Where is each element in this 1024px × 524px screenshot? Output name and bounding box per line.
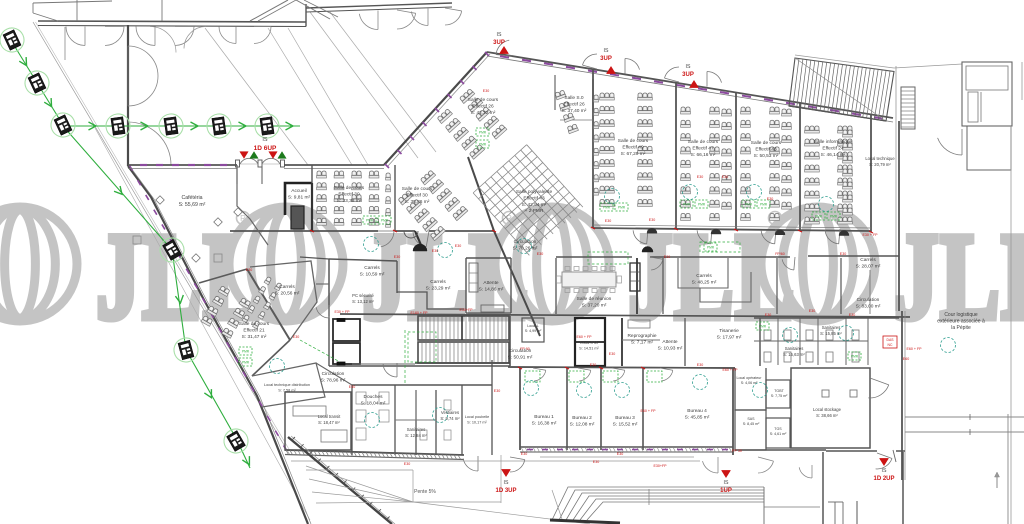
svg-text:E30: E30 [649, 218, 655, 222]
svg-text:E30: E30 [293, 335, 299, 339]
svg-text:E30: E30 [697, 175, 703, 179]
svg-text:Bureau 2: Bureau 2 [572, 415, 592, 421]
svg-text:S: 38,66 m²: S: 38,66 m² [816, 413, 838, 418]
svg-text:S: 42,94 m²: S: 42,94 m² [522, 202, 547, 208]
svg-text:S: 15,85 m²: S: 15,85 m² [820, 331, 842, 336]
svg-text:Salle S.0: Salle S.0 [564, 95, 584, 101]
svg-text:Cour logistique: Cour logistique [944, 312, 978, 318]
svg-text:IS: IS [882, 468, 887, 474]
svg-text:S: 37,20 m²: S: 37,20 m² [582, 302, 607, 308]
svg-text:Reprographie: Reprographie [627, 333, 656, 339]
svg-text:E30: E30 [432, 249, 438, 253]
svg-text:SAS: SAS [747, 417, 755, 421]
svg-text:E30: E30 [809, 309, 815, 313]
svg-text:S: 20,79 m²: S: 20,79 m² [869, 162, 891, 167]
svg-text:E60 + FP: E60 + FP [722, 368, 738, 372]
svg-text:S: 7,58 m²: S: 7,58 m² [278, 388, 296, 392]
svg-text:E30: E30 [404, 462, 410, 466]
svg-text:3UP: 3UP [600, 56, 612, 62]
svg-text:PMR: PMR [760, 203, 768, 207]
svg-text:Local L: Local L [527, 324, 539, 328]
svg-text:Salle de cours: Salle de cours [618, 138, 649, 144]
svg-text:E30 + FP: E30 + FP [862, 233, 878, 237]
svg-text:E30: E30 [349, 385, 355, 389]
svg-text:S: 70,26 m²: S: 70,26 m² [513, 245, 538, 251]
svg-text:E30: E30 [521, 452, 527, 456]
svg-text:Attente: Attente [662, 339, 678, 345]
svg-text:IS: IS [262, 137, 268, 143]
svg-text:S: 37,40 m²: S: 37,40 m² [562, 108, 587, 114]
svg-text:Salle polyvalente: Salle polyvalente [516, 189, 553, 195]
svg-text:S: 13,12 m²: S: 13,12 m² [352, 299, 374, 304]
svg-text:Local technique: Local technique [865, 156, 895, 161]
svg-text:E30: E30 [849, 313, 855, 317]
svg-text:1UP: 1UP [720, 488, 732, 494]
svg-text:S: 8,45 m²: S: 8,45 m² [743, 422, 760, 426]
svg-text:E30: E30 [494, 389, 500, 393]
svg-text:PMR: PMR [698, 203, 706, 207]
svg-text:Salle de cours: Salle de cours [468, 97, 499, 103]
svg-text:Bureau 1: Bureau 1 [534, 414, 554, 420]
svg-text:PMR: PMR [603, 206, 611, 210]
svg-text:Salle de cours: Salle de cours [688, 139, 719, 145]
svg-text:PMR: PMR [759, 325, 767, 329]
svg-text:TGBT: TGBT [774, 389, 784, 393]
svg-text:3UP: 3UP [493, 40, 505, 46]
svg-text:S: 9,81 m²: S: 9,81 m² [288, 194, 311, 200]
svg-text:S: 10,17 m²: S: 10,17 m² [467, 420, 487, 424]
svg-text:E30: E30 [246, 268, 252, 272]
svg-text:Local CTA: Local CTA [580, 341, 598, 345]
svg-text:Effectif 43: Effectif 43 [523, 195, 545, 201]
svg-text:E30: E30 [765, 313, 771, 317]
svg-text:Local opérateur: Local opérateur [737, 376, 763, 380]
svg-text:S: 17,97 m²: S: 17,97 m² [717, 334, 742, 340]
svg-text:E30: E30 [840, 252, 846, 256]
svg-text:Bureau 4: Bureau 4 [687, 408, 707, 414]
svg-text:E30 + FP: E30 + FP [334, 310, 350, 314]
svg-text:E30: E30 [767, 197, 773, 201]
svg-text:Circulation: Circulation [509, 348, 532, 354]
svg-text:Circulation: Circulation [857, 297, 880, 303]
svg-text:S: 14,86 m²: S: 14,86 m² [479, 286, 504, 292]
svg-text:E30+FP: E30+FP [653, 464, 667, 468]
svg-text:3UP: 3UP [682, 72, 694, 78]
svg-text:S: 16,38 m²: S: 16,38 m² [532, 420, 557, 426]
svg-text:DAS: DAS [887, 338, 895, 342]
svg-text:Local technique distribution: Local technique distribution [264, 383, 310, 387]
svg-text:S: 10,93 m²: S: 10,93 m² [658, 345, 683, 351]
svg-text:PMR: PMR [745, 203, 753, 207]
svg-text:E60: E60 [903, 357, 909, 361]
svg-text:Carrels: Carrels [860, 257, 876, 263]
svg-text:S: 50,91 m²: S: 50,91 m² [508, 354, 533, 360]
svg-text:S: 4,99 m²: S: 4,99 m² [525, 329, 542, 333]
svg-text:Attente: Attente [483, 280, 499, 286]
svg-text:E30: E30 [593, 460, 599, 464]
svg-text:S: 31,47 m²: S: 31,47 m² [242, 334, 267, 340]
svg-text:PMR: PMR [381, 219, 389, 223]
svg-text:S: 45,85 m²: S: 45,85 m² [685, 414, 710, 420]
svg-text:Local stockage: Local stockage [813, 407, 842, 412]
svg-text:Carrels: Carrels [364, 265, 380, 271]
svg-text:PMR: PMR [707, 246, 715, 250]
svg-text:Sanitaires: Sanitaires [407, 427, 426, 432]
svg-text:PMR: PMR [242, 361, 250, 365]
svg-text:Circulation: Circulation [514, 239, 537, 245]
svg-text:S: 78,96 m²: S: 78,96 m² [321, 377, 346, 383]
svg-text:S: 83,00 m²: S: 83,00 m² [856, 303, 881, 309]
svg-text:Salle de cours: Salle de cours [402, 186, 433, 192]
svg-text:Douches: Douches [364, 394, 384, 400]
svg-text:E30: E30 [664, 255, 670, 259]
svg-text:S: 23,29 m²: S: 23,29 m² [426, 285, 451, 291]
svg-text:IS: IS [497, 32, 502, 38]
svg-text:S: 48,25 m²: S: 48,25 m² [692, 279, 717, 285]
svg-text:extérieure associée à: extérieure associée à [937, 319, 985, 325]
svg-text:S: 7,17 m²: S: 7,17 m² [631, 339, 654, 345]
svg-text:S: 14,51 m²: S: 14,51 m² [579, 346, 599, 350]
svg-text:PMR: PMR [479, 143, 487, 147]
svg-text:S: 38,86 m²: S: 38,86 m² [405, 199, 430, 205]
svg-text:E30: E30 [537, 252, 543, 256]
svg-text:Salle de cours: Salle de cours [239, 321, 270, 327]
svg-text:Carrels: Carrels [279, 284, 295, 290]
svg-text:PMR: PMR [618, 206, 626, 210]
svg-text:NC: NC [888, 343, 893, 347]
svg-text:Salle de cours: Salle de cours [751, 140, 782, 146]
svg-text:1D 3UP: 1D 3UP [495, 488, 516, 494]
svg-text:S: 55,69 m²: S: 55,69 m² [179, 202, 206, 208]
svg-text:S: 15,63 m²: S: 15,63 m² [783, 352, 805, 357]
svg-text:Effectif 24: Effectif 24 [822, 145, 844, 151]
svg-text:S: 50,53 m²: S: 50,53 m² [754, 153, 779, 159]
svg-text:PMR: PMR [683, 203, 691, 207]
svg-text:Salle informatique: Salle informatique [814, 139, 853, 145]
svg-text:S: 12,08 m²: S: 12,08 m² [570, 421, 595, 427]
svg-text:S: 4,06 m²: S: 4,06 m² [741, 381, 758, 385]
svg-text:S: 33,38 m²: S: 33,38 m² [337, 198, 362, 204]
svg-text:E60 + FP: E60 + FP [906, 347, 922, 351]
svg-text:E30: E30 [394, 255, 400, 259]
svg-text:IS: IS [504, 480, 509, 486]
svg-text:E60 + FP: E60 + FP [576, 335, 592, 339]
svg-text:Tisanerie: Tisanerie [719, 328, 739, 334]
svg-text:E30: E30 [455, 244, 461, 248]
svg-text:Effectif 26: Effectif 26 [563, 101, 585, 107]
svg-text:Local transit: Local transit [318, 414, 341, 419]
svg-text:Carrels: Carrels [430, 279, 446, 285]
svg-text:Circulation: Circulation [322, 371, 345, 377]
svg-text:PC sécurité: PC sécurité [352, 293, 374, 298]
svg-text:E30: E30 [697, 363, 703, 367]
svg-text:1D 2UP: 1D 2UP [873, 476, 894, 482]
svg-text:E30: E30 [605, 219, 611, 223]
svg-text:S: 28,07 m²: S: 28,07 m² [856, 263, 881, 269]
svg-text:PMR: PMR [366, 219, 374, 223]
svg-text:E60 + FP: E60 + FP [640, 409, 656, 413]
svg-text:E180 + FP: E180 + FP [410, 311, 428, 315]
svg-text:PP 30: PP 30 [732, 449, 742, 453]
svg-text:Salle de réunion: Salle de réunion [577, 296, 612, 302]
svg-text:la Pépite: la Pépite [951, 325, 971, 331]
svg-text:Cafétéria: Cafétéria [181, 195, 202, 201]
svg-text:S: 10,59 m²: S: 10,59 m² [360, 271, 385, 277]
svg-text:PMR: PMR [242, 350, 250, 354]
svg-text:PMR: PMR [479, 131, 487, 135]
svg-text:FP/60: FP/60 [775, 252, 785, 256]
svg-text:Effectif 30: Effectif 30 [338, 191, 360, 197]
svg-text:Local poubelle: Local poubelle [465, 415, 490, 419]
svg-text:Effectif 43: Effectif 43 [755, 146, 777, 152]
svg-text:Effectif 26: Effectif 26 [472, 103, 494, 109]
svg-text:S: 42,32 m²: S: 42,32 m² [471, 110, 496, 116]
svg-text:IS: IS [604, 48, 609, 54]
svg-text:IS: IS [686, 64, 691, 70]
svg-text:E30: E30 [722, 175, 728, 179]
svg-text:E30: E30 [609, 352, 615, 356]
svg-text:S: 66,16 m²: S: 66,16 m² [691, 152, 716, 158]
svg-text:Sanitaires: Sanitaires [785, 346, 804, 351]
svg-text:Carrels: Carrels [696, 273, 712, 279]
svg-text:PMR: PMR [851, 355, 859, 359]
svg-text:Effectif 49: Effectif 49 [622, 144, 644, 150]
svg-text:S: 46,14 m²: S: 46,14 m² [821, 152, 846, 158]
svg-text:Pente 5%: Pente 5% [414, 489, 436, 495]
svg-text:E30+FP: E30+FP [459, 308, 473, 312]
svg-text:1D 6UP: 1D 6UP [254, 145, 277, 152]
svg-text:S: 7,75 m²: S: 7,75 m² [771, 394, 788, 398]
svg-text:+ 2 PMR: + 2 PMR [525, 208, 544, 214]
svg-text:Bureau 3: Bureau 3 [615, 415, 635, 421]
svg-text:E30: E30 [617, 452, 623, 456]
svg-text:PMR: PMR [830, 215, 838, 219]
svg-text:S: 4,61 m²: S: 4,61 m² [770, 432, 787, 436]
svg-text:IS: IS [724, 480, 729, 486]
svg-text:E30: E30 [483, 89, 489, 93]
svg-text:R: R [240, 214, 246, 223]
svg-text:S: 67,29 m²: S: 67,29 m² [621, 151, 646, 157]
svg-text:Accueil: Accueil [291, 188, 306, 194]
svg-text:Effectif 47: Effectif 47 [692, 145, 714, 151]
svg-text:Vestiaires: Vestiaires [441, 410, 459, 415]
svg-text:S: 18,04 m²: S: 18,04 m² [361, 400, 386, 406]
svg-text:Sanitaires: Sanitaires [822, 325, 841, 330]
svg-text:S: 18,47 m²: S: 18,47 m² [318, 420, 340, 425]
svg-text:Effectif 30: Effectif 30 [406, 192, 428, 198]
svg-text:S: 20,56 m²: S: 20,56 m² [275, 290, 300, 296]
svg-text:S: 15,52 m²: S: 15,52 m² [613, 421, 638, 427]
svg-text:Salle de cours: Salle de cours [334, 185, 365, 191]
svg-text:Effectif 21: Effectif 21 [243, 327, 265, 333]
svg-text:E30: E30 [590, 363, 596, 367]
svg-text:S: 9,74 m²: S: 9,74 m² [440, 416, 460, 421]
svg-text:S: 12,84 m²: S: 12,84 m² [405, 433, 427, 438]
svg-text:PMR: PMR [815, 215, 823, 219]
svg-text:TGS: TGS [774, 427, 782, 431]
